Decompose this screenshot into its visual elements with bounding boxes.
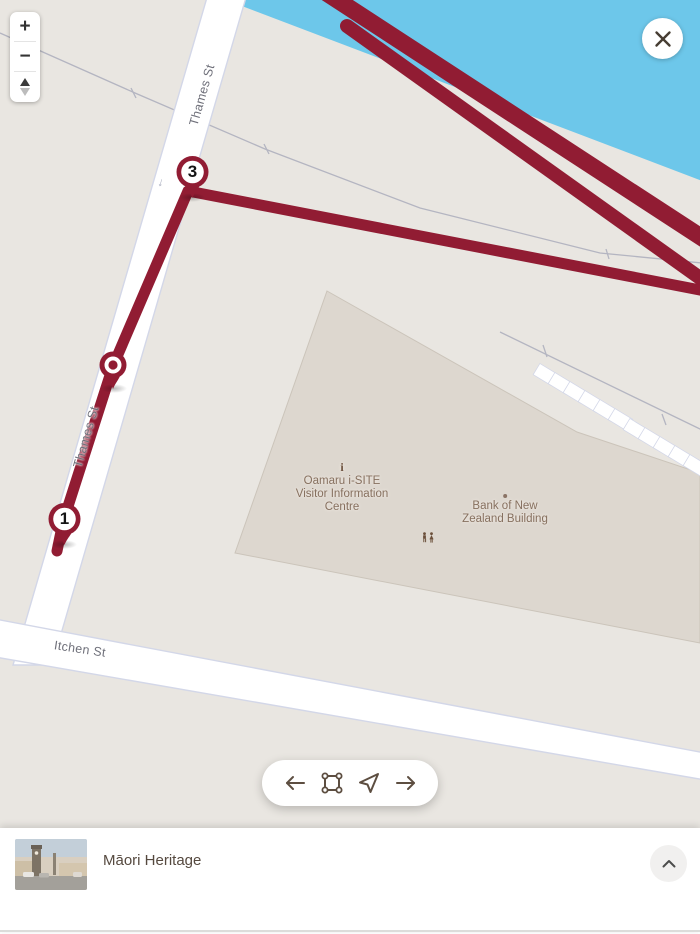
navigate-arrow-icon xyxy=(356,770,382,796)
tour-info-bar[interactable]: Māori Heritage xyxy=(0,828,700,932)
compass-up-icon xyxy=(20,78,30,86)
marker-number: 3 xyxy=(188,162,197,182)
info-icon: i xyxy=(296,461,388,474)
poi-bnz-line2: Zealand Building xyxy=(462,513,548,525)
poi-bnz-line1: Bank of New xyxy=(472,500,537,512)
map-canvas[interactable]: ↓ Thames St Thames St Itchen St i Oamaru… xyxy=(0,0,700,828)
chevron-up-icon xyxy=(662,859,676,868)
app-window: ↓ Thames St Thames St Itchen St i Oamaru… xyxy=(0,0,700,934)
fit-bounds-button[interactable] xyxy=(317,768,347,798)
map-layers xyxy=(0,0,700,828)
street-itchen xyxy=(0,619,700,780)
poi-isite-line2: Visitor Information xyxy=(296,488,388,500)
next-stop-button[interactable] xyxy=(391,768,421,798)
close-button[interactable] xyxy=(642,18,683,59)
dot-icon xyxy=(503,494,507,498)
water-area xyxy=(213,0,700,182)
previous-stop-button[interactable] xyxy=(280,768,310,798)
marker-number: 1 xyxy=(60,509,69,529)
poi-bnz: Bank of New Zealand Building xyxy=(462,494,548,526)
close-icon xyxy=(654,30,672,48)
oamaru-clock-tower-photo xyxy=(15,839,87,890)
arrow-left-icon xyxy=(283,771,307,795)
bounds-corners-icon xyxy=(320,771,344,795)
restroom-icon xyxy=(421,532,436,543)
zoom-out-button[interactable]: − xyxy=(10,42,40,71)
poi-isite-line3: Centre xyxy=(325,501,360,513)
zoom-control: + − xyxy=(10,12,40,102)
tour-thumbnail[interactable] xyxy=(15,839,87,890)
poi-isite: i Oamaru i-SITE Visitor Information Cent… xyxy=(296,461,388,514)
route-toolbar xyxy=(262,760,438,806)
expand-panel-button[interactable] xyxy=(650,845,687,882)
zoom-in-button[interactable]: + xyxy=(10,12,40,41)
compass-down-icon xyxy=(20,88,30,96)
ring-marker-icon xyxy=(97,349,129,391)
poi-isite-line1: Oamaru i-SITE xyxy=(304,475,381,487)
locate-me-button[interactable] xyxy=(354,768,384,798)
arrow-right-icon xyxy=(394,771,418,795)
tour-title: Māori Heritage xyxy=(103,852,201,869)
compass-button[interactable] xyxy=(10,72,40,102)
